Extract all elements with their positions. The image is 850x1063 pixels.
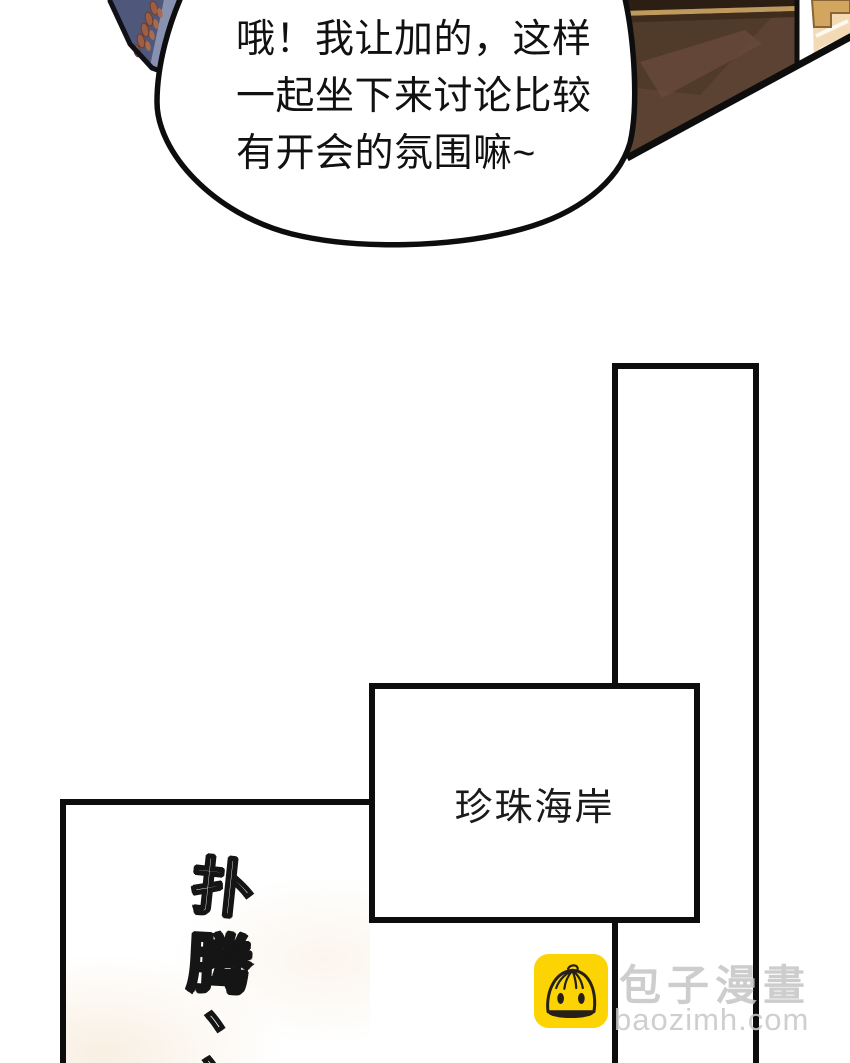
speech-bubble-text: 哦！我让加的，这样 一起坐下来讨论比较 有开会的氛围嘛~: [236, 11, 616, 182]
watermark-site-url: baozimh.com: [614, 1002, 844, 1038]
location-caption-box: 珍珠海岸: [369, 683, 700, 923]
baozi-bun-icon: [534, 954, 608, 1028]
location-label: 珍珠海岸: [454, 776, 614, 831]
comic-page: 哦！我让加的，这样 一起坐下来讨论比较 有开会的氛围嘛~ 珍珠海岸 扑 腾 、 …: [0, 0, 850, 1063]
